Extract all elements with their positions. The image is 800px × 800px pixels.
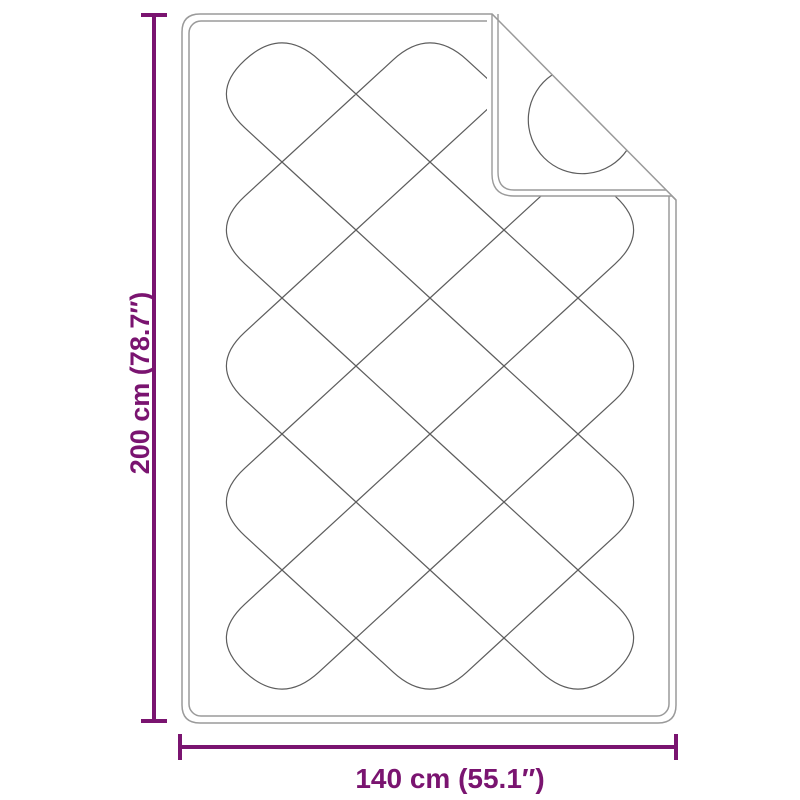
height-label: 200 cm (78.7″) [125,292,155,475]
blanket-outline-group [182,14,676,723]
blanket-body [182,14,676,723]
blanket-drawing: 200 cm (78.7″) 140 cm (55.1″) [0,0,800,800]
fold-flap [492,14,676,200]
width-label: 140 cm (55.1″) [355,763,544,794]
horizontal-dimension [180,734,676,760]
product-dimension-diagram: 200 cm (78.7″) 140 cm (55.1″) [0,0,800,800]
